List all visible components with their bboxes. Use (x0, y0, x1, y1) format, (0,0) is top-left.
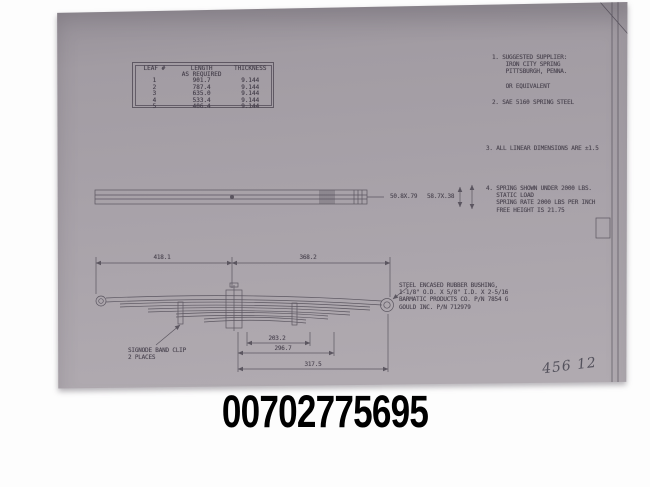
center-bolt-hole (230, 195, 234, 199)
leaf-table-grid: LEAF # LENGTH AS REQUIRED THICKNESS 1 90… (135, 65, 272, 106)
dim-lower-2: 296.7 (265, 345, 301, 352)
bushing-note: STEEL ENCASED RUBBER BUSHING, 1-1/8" O.D… (399, 282, 508, 311)
revision-mark (596, 218, 610, 238)
dim-section-right: 58.7X.38 (427, 193, 454, 200)
sheet-border (596, 2, 628, 386)
band-clip-label: SIGNODE BAND CLIP 2 PLACES (128, 347, 186, 361)
dim-lower-1: 203.2 (259, 335, 295, 342)
drawing-sheet-wrap: LEAF # LENGTH AS REQUIRED THICKNESS 1 90… (56, 2, 628, 390)
rear-eye-bushing (381, 299, 394, 312)
part-number: 00702775695 (72, 391, 579, 433)
table-cell: 406.4 (173, 104, 230, 110)
leaf-table: LEAF # LENGTH AS REQUIRED THICKNESS 1 90… (132, 62, 274, 108)
note-tolerances: 3. ALL LINEAR DIMENSIONS ARE ±1.5 (486, 145, 599, 152)
dim-lower-3: 317.5 (295, 361, 331, 368)
dim-section-left: 50.8X.79 (390, 193, 417, 200)
leaf-spring-assembly-view (96, 283, 394, 331)
table-cell: 9.144 (230, 104, 271, 110)
drawing-sheet: LEAF # LENGTH AS REQUIRED THICKNESS 1 90… (56, 2, 628, 390)
note-material: 2. SAE 5160 SPRING STEEL (492, 99, 574, 106)
note-supplier: 1. SUGGESTED SUPPLIER: IRON CITY SPRING … (492, 54, 567, 90)
band-clip-leader (156, 325, 180, 345)
front-eye (96, 296, 106, 306)
photo-of-drawing: LEAF # LENGTH AS REQUIRED THICKNESS 1 90… (0, 0, 650, 487)
dim-overall-left: 418.1 (142, 254, 182, 261)
dim-overall-right: 368.2 (288, 254, 328, 261)
note-spring-rate: 4. SPRING SHOWN UNDER 2000 LBS. STATIC L… (486, 185, 595, 214)
table-cell: 5 (136, 104, 174, 110)
